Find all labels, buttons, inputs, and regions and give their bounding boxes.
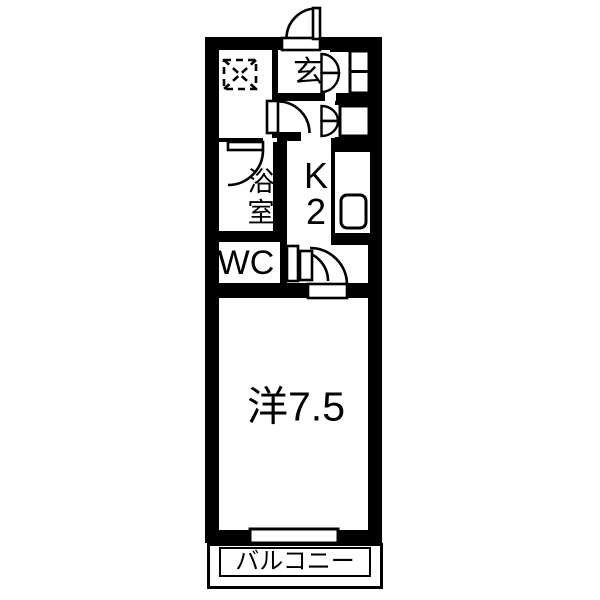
entrance-door-icon: [282, 8, 320, 50]
balcony-label-box: バルコニー: [219, 547, 371, 577]
washing-machine-space-icon: [224, 60, 256, 89]
floorplan-symbols: [0, 0, 600, 600]
balcony-label: バルコニー: [235, 550, 355, 574]
wc-label: WC: [218, 246, 275, 280]
hall-closet-bifold-icon: [322, 106, 339, 136]
entrance-closet-bifold-icon: [322, 54, 340, 92]
bathroom-label: 浴室: [245, 167, 272, 229]
balcony-window-icon: [250, 529, 338, 543]
main-room-label: 洋7.5: [247, 387, 345, 428]
genkan-label: 玄: [293, 58, 323, 88]
hall-storage-box-icon: [340, 106, 369, 136]
kitchen-label: K: [304, 158, 328, 194]
main-room-door-icon: [300, 248, 347, 298]
kitchen-sink-icon: [341, 195, 366, 228]
kitchen-size-label: 2: [306, 194, 326, 230]
hall-door-icon: [267, 101, 310, 133]
floor-plan: バルコニー 玄 浴室 K 2 WC 洋7.5: [0, 0, 600, 600]
shoe-shelf-icon: [350, 51, 369, 93]
